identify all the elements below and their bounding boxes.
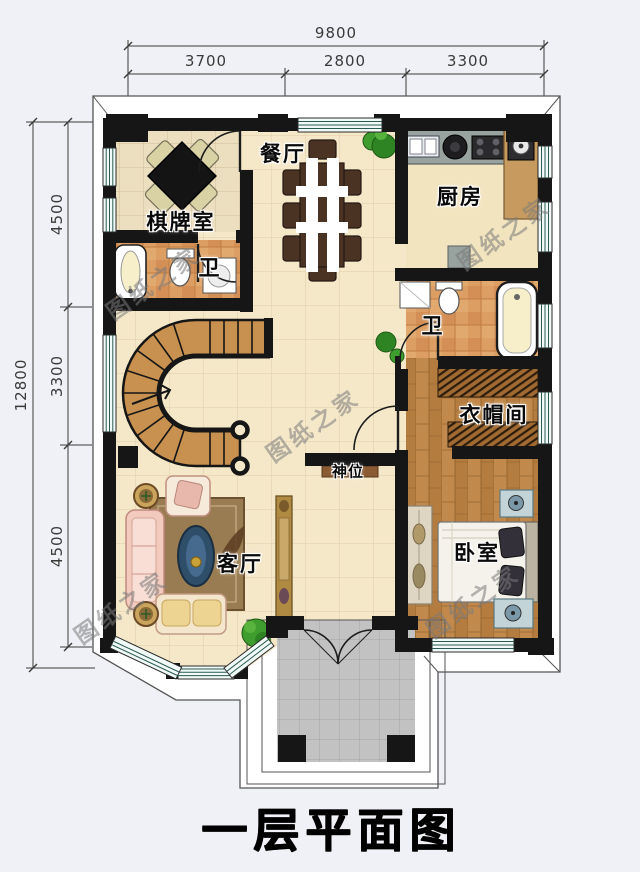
dim-top-total: 9800 <box>315 24 357 42</box>
room-label-living: 客厅 <box>217 548 263 578</box>
dim-top-seg3: 3300 <box>447 52 489 70</box>
dim-left-seg2: 3300 <box>48 355 66 397</box>
room-label-dining: 餐厅 <box>260 138 306 168</box>
kitchen-sink-icon <box>407 136 439 157</box>
dim-top-seg2: 2800 <box>324 52 366 70</box>
tv-cabinet <box>276 496 292 618</box>
dim-top-seg1: 3700 <box>185 52 227 70</box>
floor-plan-drawing <box>0 0 640 872</box>
single-sofa <box>166 476 210 516</box>
page-title: 一层平面图 <box>201 794 461 860</box>
room-label-game-room: 棋牌室 <box>147 206 216 236</box>
floor-plan-page: { "title": {"text": "一层平面图"}, "watermark… <box>0 0 640 872</box>
sink-icon <box>400 282 430 308</box>
room-label-cloakroom: 衣帽间 <box>460 399 529 429</box>
dim-left-seg3: 4500 <box>48 525 66 567</box>
room-label-shrine: 神位 <box>332 461 364 482</box>
side-table <box>134 484 158 508</box>
coffee-table <box>178 526 214 586</box>
room-label-bath1: 卫 <box>199 252 222 282</box>
stove-icon <box>472 136 506 159</box>
dim-left-seg1: 4500 <box>48 193 66 235</box>
room-label-bedroom: 卧室 <box>454 537 500 567</box>
kitchen-cabinet <box>448 246 470 268</box>
room-label-kitchen: 厨房 <box>437 181 483 211</box>
side-table <box>134 602 158 626</box>
dim-left-total: 12800 <box>12 359 30 412</box>
nightstand <box>500 490 533 517</box>
bathtub-icon <box>497 282 537 359</box>
nightstand <box>494 599 533 628</box>
room-label-bath2: 卫 <box>422 310 445 340</box>
loveseat-sofa <box>156 594 226 634</box>
